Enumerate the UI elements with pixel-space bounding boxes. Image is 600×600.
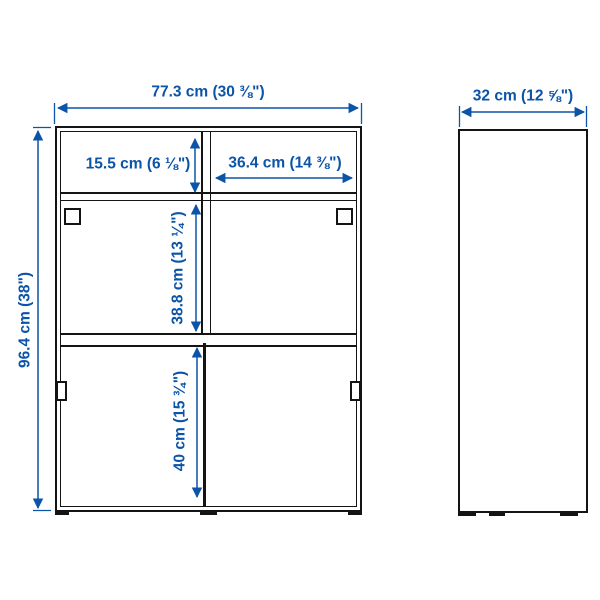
side-view-panel [458, 129, 588, 513]
lower-sliding-door-edge [203, 343, 206, 507]
label-bottom-section-height: 40 cm (15 ¾") [172, 371, 188, 471]
label-front-width: 77.3 cm (30 ⅜") [151, 84, 264, 100]
tick-side-depth [460, 106, 587, 127]
front-right-foot [348, 510, 362, 515]
side-rear-foot [560, 511, 578, 516]
bottom-right-door-handle [350, 381, 361, 401]
label-middle-section-height: 38.8 cm (13 ¼") [170, 211, 186, 324]
label-front-height: 96.4 cm (38") [17, 272, 33, 368]
tick-front-width [55, 103, 362, 124]
side-middle-foot [489, 511, 505, 516]
upper-vertical-divider [201, 131, 211, 333]
label-top-right-width: 36.4 cm (14 ⅜") [228, 155, 341, 171]
tick-front-height [33, 128, 51, 511]
side-front-foot [458, 511, 476, 516]
front-left-foot [55, 510, 69, 515]
front-view-cabinet [55, 126, 362, 512]
bottom-left-door-handle [56, 381, 67, 401]
middle-horizontal-divider [60, 333, 357, 347]
label-top-shelf-height: 15.5 cm (6 ⅛") [86, 156, 191, 172]
product-dimension-diagram: 77.3 cm (30 ⅜") 96.4 cm (38") 32 cm (12 … [0, 0, 600, 600]
label-side-depth: 32 cm (12 ⅝") [473, 88, 573, 104]
middle-left-door-handle [64, 208, 81, 225]
middle-right-door-handle [336, 208, 353, 225]
front-center-foot [200, 510, 217, 515]
